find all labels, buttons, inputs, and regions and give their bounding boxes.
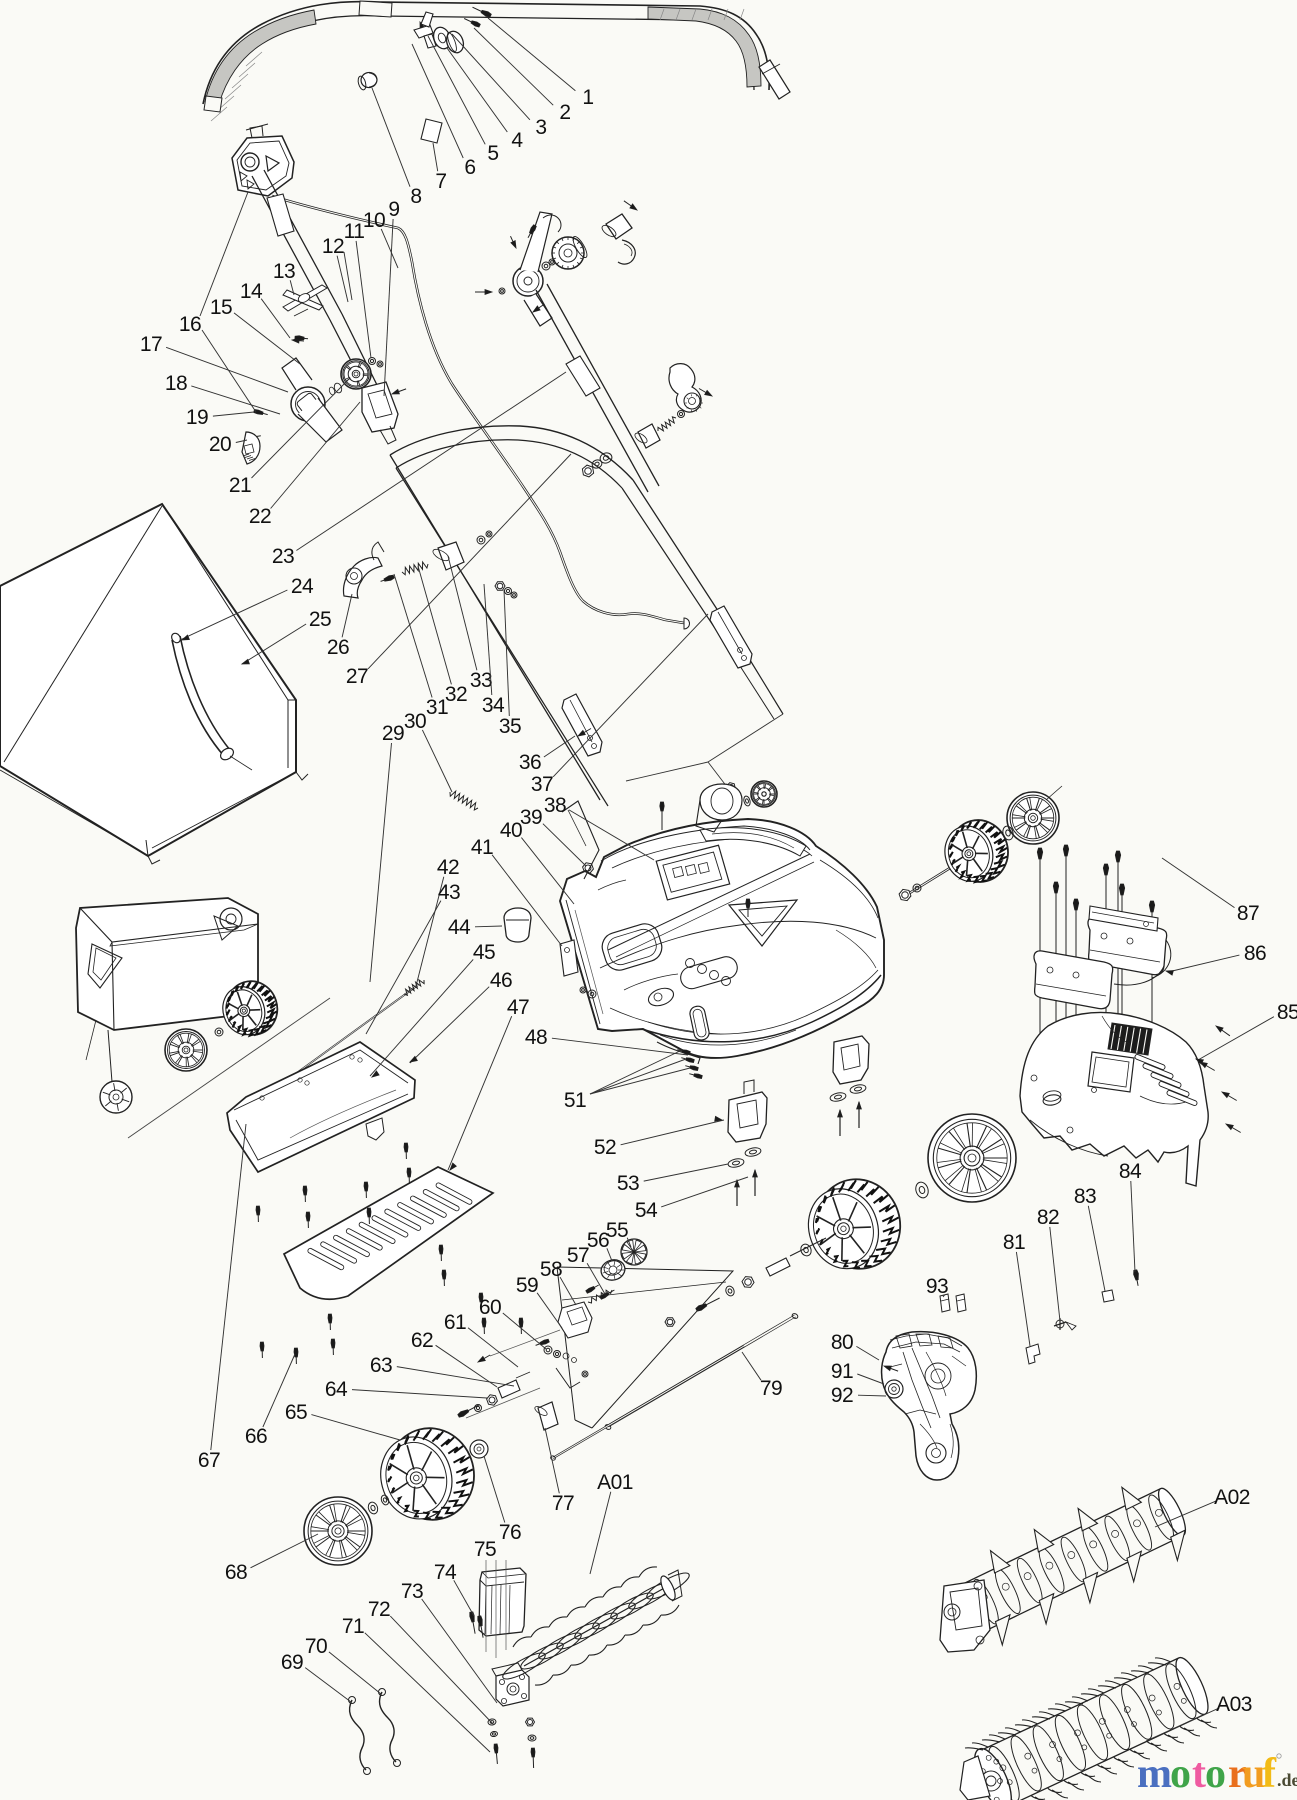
svg-text:51: 51 (564, 1089, 586, 1112)
svg-text:56: 56 (587, 1229, 609, 1252)
svg-text:37: 37 (531, 773, 553, 796)
svg-text:85: 85 (1277, 1001, 1297, 1024)
svg-text:47: 47 (507, 996, 529, 1019)
svg-text:68: 68 (225, 1561, 247, 1584)
svg-text:73: 73 (401, 1580, 423, 1603)
svg-text:4: 4 (511, 129, 523, 152)
svg-text:33: 33 (470, 669, 492, 692)
svg-text:82: 82 (1037, 1206, 1059, 1229)
svg-text:27: 27 (346, 665, 368, 688)
svg-text:7: 7 (435, 170, 446, 193)
svg-text:72: 72 (368, 1598, 390, 1621)
svg-text:62: 62 (411, 1329, 433, 1352)
svg-text:36: 36 (519, 751, 541, 774)
svg-text:77: 77 (552, 1492, 574, 1515)
svg-text:26: 26 (327, 636, 349, 659)
svg-text:6: 6 (464, 156, 475, 179)
svg-text:48: 48 (525, 1026, 547, 1049)
svg-text:o: o (1205, 1751, 1226, 1797)
svg-text:74: 74 (434, 1561, 457, 1584)
svg-text:8: 8 (410, 185, 421, 208)
svg-text:29: 29 (382, 722, 404, 745)
svg-text:76: 76 (499, 1521, 521, 1544)
svg-text:14: 14 (240, 280, 263, 303)
svg-text:18: 18 (165, 372, 187, 395)
svg-text:9: 9 (388, 198, 399, 221)
svg-text:10: 10 (363, 209, 385, 232)
svg-text:35: 35 (499, 715, 521, 738)
svg-text:m: m (1137, 1751, 1172, 1797)
svg-text:17: 17 (140, 333, 162, 356)
svg-text:45: 45 (473, 941, 495, 964)
svg-text:16: 16 (179, 313, 201, 336)
svg-text:70: 70 (305, 1635, 327, 1658)
svg-text:57: 57 (567, 1244, 589, 1267)
svg-text:84: 84 (1119, 1160, 1142, 1183)
svg-text:41: 41 (471, 836, 493, 859)
svg-text:53: 53 (617, 1172, 639, 1195)
svg-text:79: 79 (760, 1377, 782, 1400)
svg-text:34: 34 (482, 694, 505, 717)
svg-text:67: 67 (198, 1449, 220, 1472)
svg-text:91: 91 (831, 1360, 853, 1383)
svg-text:.de: .de (1277, 1770, 1297, 1790)
svg-text:20: 20 (209, 433, 231, 456)
svg-text:30: 30 (404, 710, 426, 733)
svg-text:22: 22 (249, 505, 271, 528)
svg-text:80: 80 (831, 1331, 853, 1354)
svg-text:23: 23 (272, 545, 294, 568)
svg-text:87: 87 (1237, 902, 1259, 925)
svg-text:60: 60 (479, 1296, 501, 1319)
svg-text:38: 38 (544, 794, 566, 817)
svg-text:58: 58 (540, 1258, 562, 1281)
svg-text:40: 40 (500, 819, 522, 842)
svg-text:t: t (1192, 1751, 1206, 1797)
svg-text:71: 71 (342, 1615, 364, 1638)
svg-text:42: 42 (437, 856, 459, 879)
svg-text:69: 69 (281, 1651, 303, 1674)
svg-text:12: 12 (322, 235, 344, 258)
svg-text:83: 83 (1074, 1185, 1096, 1208)
svg-text:o: o (1170, 1751, 1191, 1797)
svg-text:21: 21 (229, 474, 251, 497)
svg-text:59: 59 (516, 1274, 538, 1297)
svg-text:54: 54 (635, 1199, 658, 1222)
svg-text:3: 3 (535, 116, 546, 139)
svg-text:39: 39 (520, 806, 542, 829)
svg-text:25: 25 (309, 608, 331, 631)
svg-text:75: 75 (474, 1538, 496, 1561)
svg-text:81: 81 (1003, 1231, 1025, 1254)
svg-text:32: 32 (445, 683, 467, 706)
svg-text:2: 2 (559, 101, 570, 124)
svg-text:63: 63 (370, 1354, 392, 1377)
svg-text:93: 93 (926, 1275, 948, 1298)
svg-text:52: 52 (594, 1136, 616, 1159)
svg-text:44: 44 (448, 916, 471, 939)
svg-text:f: f (1262, 1751, 1277, 1797)
svg-text:61: 61 (444, 1311, 466, 1334)
svg-text:A02: A02 (1214, 1486, 1250, 1509)
svg-text:92: 92 (831, 1384, 853, 1407)
svg-text:A01: A01 (597, 1471, 633, 1494)
svg-text:46: 46 (490, 969, 512, 992)
svg-text:66: 66 (245, 1425, 267, 1448)
svg-text:65: 65 (285, 1401, 307, 1424)
svg-text:86: 86 (1244, 942, 1266, 965)
svg-text:5: 5 (487, 142, 498, 165)
svg-text:1: 1 (582, 86, 593, 109)
svg-text:43: 43 (438, 881, 460, 904)
svg-text:11: 11 (344, 220, 365, 243)
svg-text:19: 19 (186, 406, 208, 429)
svg-text:15: 15 (210, 296, 232, 319)
svg-text:24: 24 (291, 575, 314, 598)
svg-text:64: 64 (325, 1378, 348, 1401)
svg-text:A03: A03 (1216, 1693, 1252, 1716)
svg-text:13: 13 (273, 260, 295, 283)
